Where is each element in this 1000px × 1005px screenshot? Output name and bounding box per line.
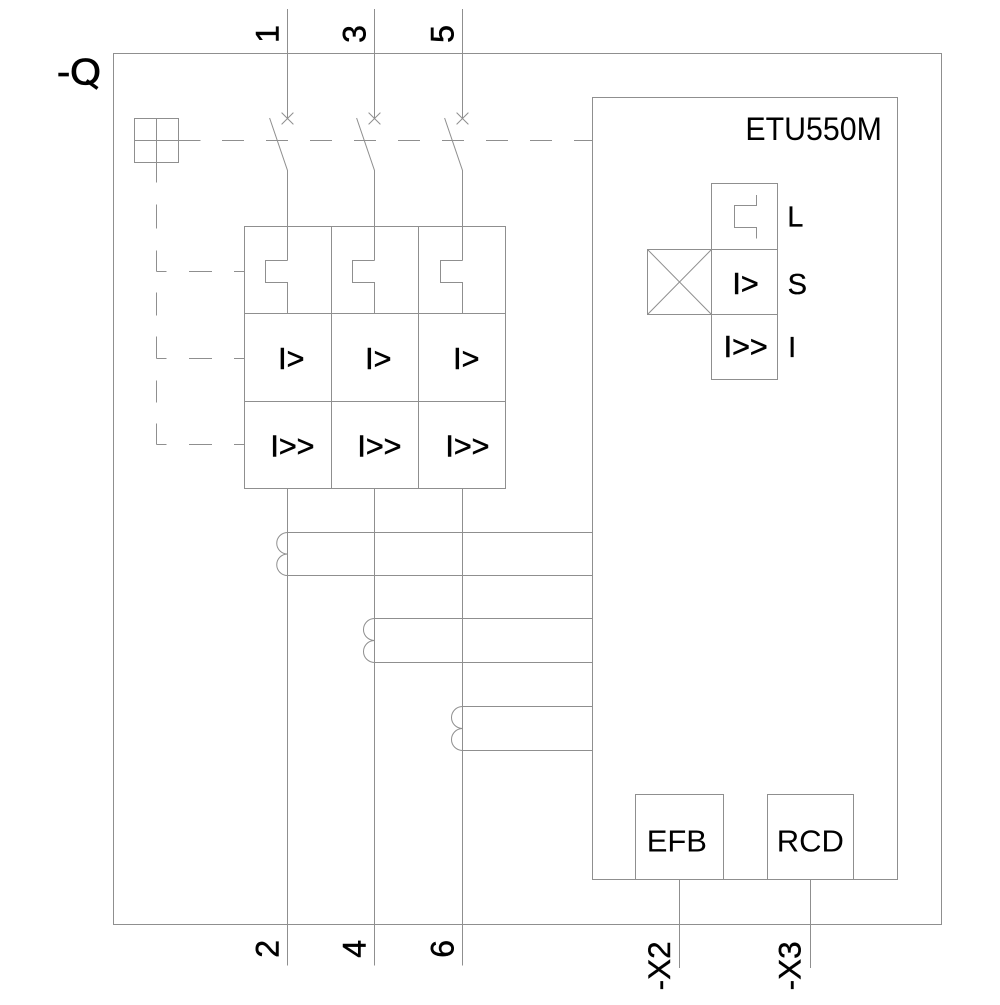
svg-text:-X3: -X3 [772, 941, 808, 990]
svg-text:6: 6 [424, 940, 460, 958]
svg-text:L: L [787, 202, 803, 234]
svg-text:2: 2 [249, 940, 285, 958]
svg-text:I>: I> [732, 267, 758, 301]
svg-text:I>: I> [278, 342, 304, 376]
svg-text:EFB: EFB [647, 823, 707, 858]
svg-text:4: 4 [336, 940, 372, 958]
svg-text:ETU550M: ETU550M [745, 111, 882, 147]
svg-text:5: 5 [424, 25, 460, 43]
svg-text:I>: I> [453, 342, 479, 376]
svg-text:I>>: I>> [270, 430, 314, 464]
svg-text:I: I [788, 332, 796, 364]
svg-text:I>>: I>> [357, 430, 401, 464]
svg-text:I>>: I>> [724, 330, 768, 364]
svg-text:1: 1 [249, 25, 285, 43]
svg-text:RCD: RCD [777, 823, 844, 858]
svg-text:I>>: I>> [445, 430, 489, 464]
svg-text:-X2: -X2 [641, 941, 677, 990]
svg-text:3: 3 [336, 25, 372, 43]
svg-text:I>: I> [365, 342, 391, 376]
svg-text:S: S [788, 269, 807, 301]
